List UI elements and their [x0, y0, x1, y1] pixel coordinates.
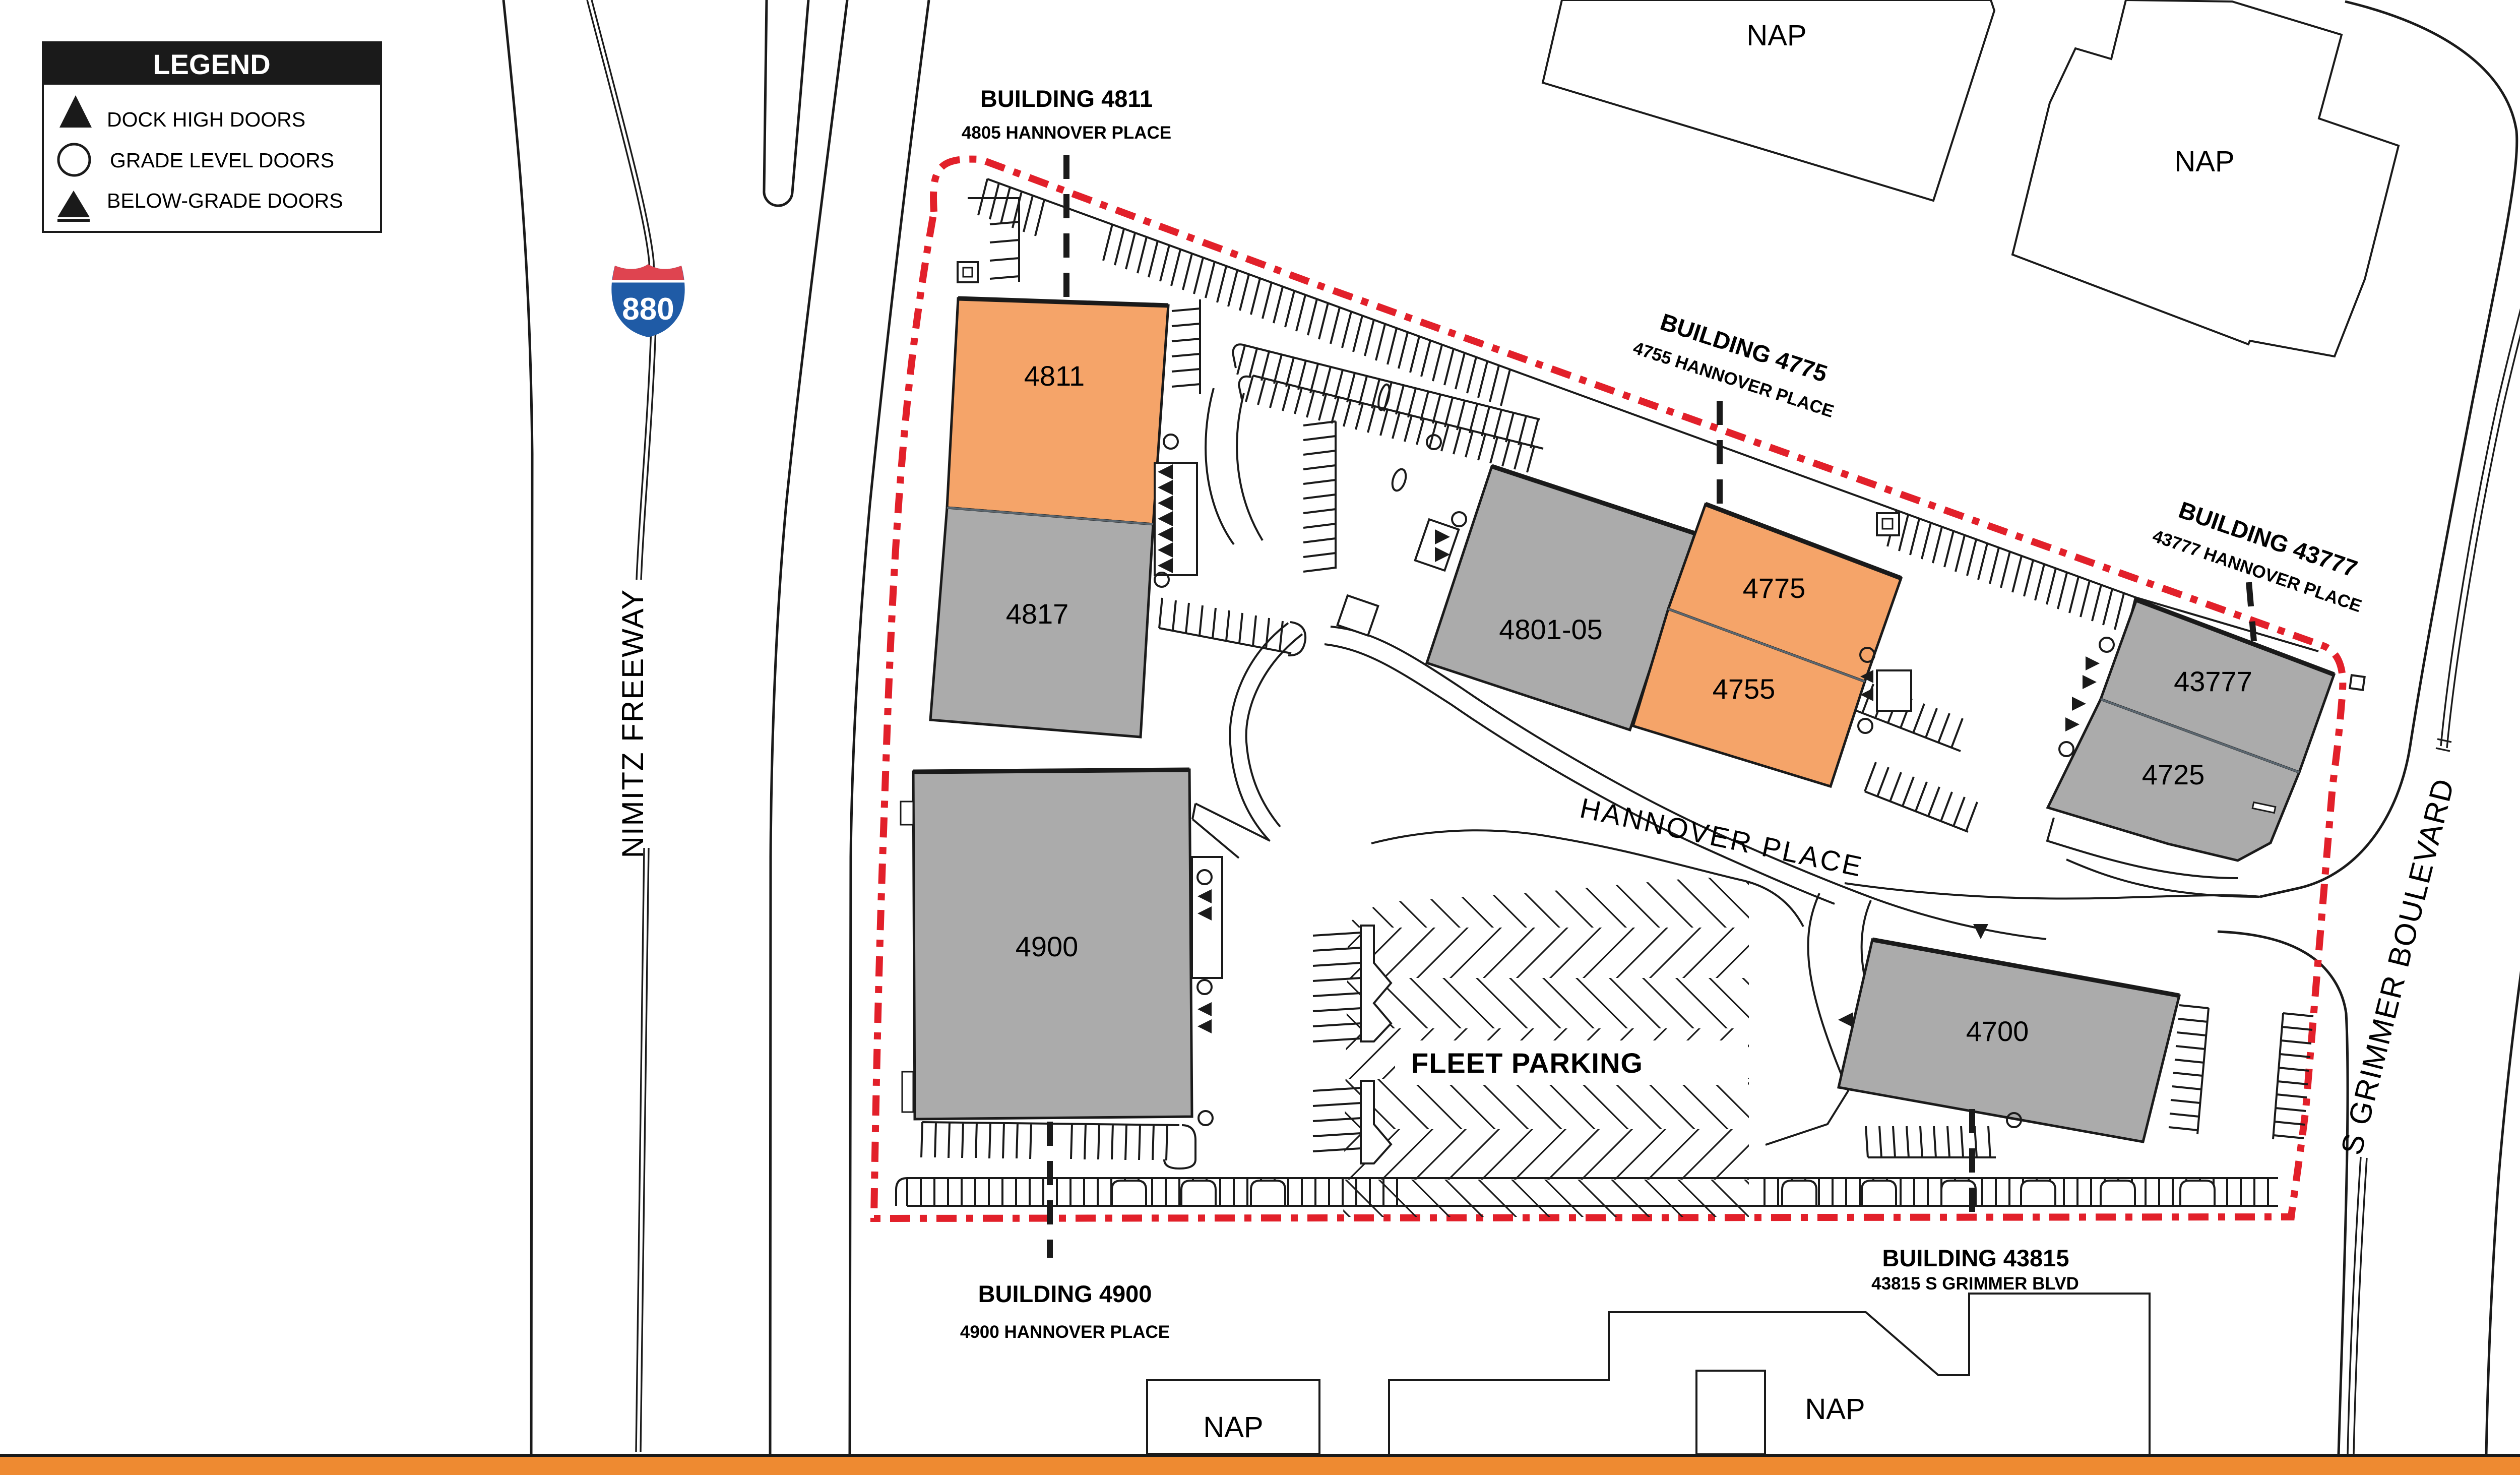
svg-text:4775: 4775 — [1743, 572, 1806, 604]
svg-text:4805 HANNOVER PLACE: 4805 HANNOVER PLACE — [962, 123, 1171, 143]
svg-text:BELOW-GRADE DOORS: BELOW-GRADE DOORS — [107, 189, 343, 212]
svg-text:4811: 4811 — [1024, 360, 1085, 392]
svg-text:FLEET PARKING: FLEET PARKING — [1411, 1047, 1643, 1079]
svg-text:NAP: NAP — [1805, 1393, 1865, 1426]
svg-text:NAP: NAP — [1746, 19, 1806, 52]
svg-text:4755: 4755 — [1713, 673, 1776, 705]
svg-text:4801-05: 4801-05 — [1499, 613, 1603, 645]
svg-text:4900 HANNOVER PLACE: 4900 HANNOVER PLACE — [960, 1322, 1170, 1342]
svg-text:BUILDING 43815: BUILDING 43815 — [1882, 1245, 2069, 1271]
svg-text:43815 S GRIMMER BLVD: 43815 S GRIMMER BLVD — [1871, 1274, 2079, 1294]
svg-text:4900: 4900 — [1016, 931, 1079, 962]
svg-text:GRADE LEVEL DOORS: GRADE LEVEL DOORS — [110, 149, 334, 172]
svg-text:880: 880 — [622, 292, 674, 327]
svg-text:BUILDING 4900: BUILDING 4900 — [978, 1280, 1152, 1307]
svg-text:DOCK HIGH DOORS: DOCK HIGH DOORS — [107, 108, 305, 131]
svg-text:4725: 4725 — [2142, 759, 2205, 790]
svg-text:4817: 4817 — [1006, 598, 1069, 630]
svg-text:43777: 43777 — [2174, 665, 2252, 697]
svg-text:NAP: NAP — [2174, 145, 2234, 178]
svg-text:4700: 4700 — [1966, 1015, 2029, 1047]
svg-text:NAP: NAP — [1203, 1411, 1263, 1444]
svg-text:NIMITZ FREEWAY: NIMITZ FREEWAY — [616, 589, 650, 858]
svg-text:BUILDING 4811: BUILDING 4811 — [980, 85, 1153, 112]
svg-text:LEGEND: LEGEND — [153, 48, 270, 80]
